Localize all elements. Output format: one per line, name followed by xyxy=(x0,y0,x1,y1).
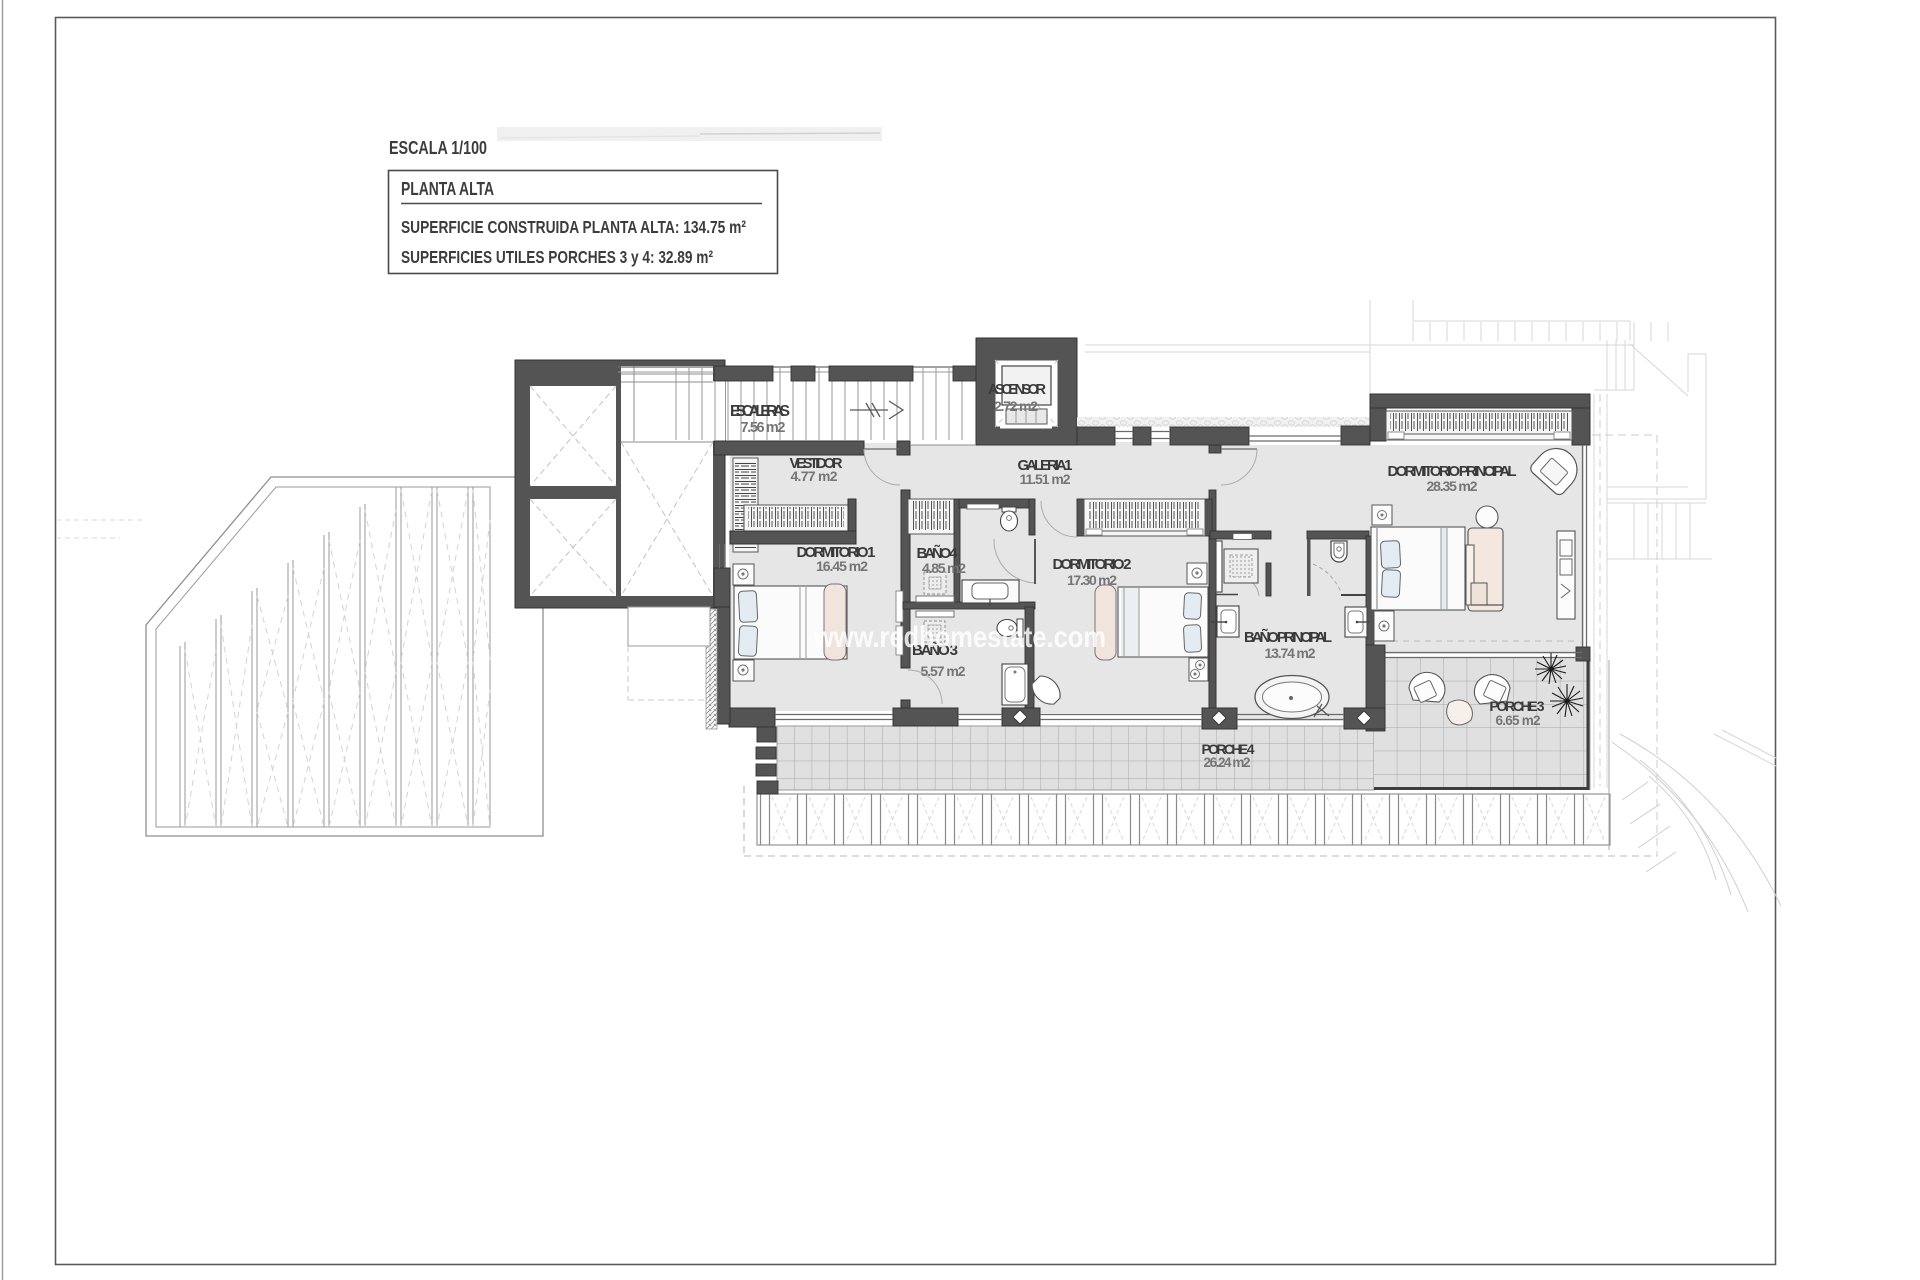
svg-text:SUPERFICIES UTILES PORCHES 3 y: SUPERFICIES UTILES PORCHES 3 y 4: 32.89 … xyxy=(401,247,713,267)
svg-text:4.77 m2: 4.77 m2 xyxy=(791,468,838,484)
svg-text:4.85 m2: 4.85 m2 xyxy=(922,560,966,576)
svg-text:6.65 m2: 6.65 m2 xyxy=(1496,713,1541,728)
svg-text:5.57 m2: 5.57 m2 xyxy=(921,663,966,679)
svg-text:7.56 m2: 7.56 m2 xyxy=(741,420,786,436)
svg-text:17.30 m2: 17.30 m2 xyxy=(1067,572,1117,588)
svg-text:13.74 m2: 13.74 m2 xyxy=(1265,645,1316,661)
svg-text:ESCALERAS: ESCALERAS xyxy=(730,403,790,420)
svg-text:SUPERFICIE CONSTRUIDA PLANTA A: SUPERFICIE CONSTRUIDA PLANTA ALTA: 134.7… xyxy=(401,217,746,237)
svg-text:16.45 m2: 16.45 m2 xyxy=(816,558,868,574)
svg-text:26.24 m2: 26.24 m2 xyxy=(1204,755,1251,770)
svg-text:ESCALA 1/100: ESCALA 1/100 xyxy=(389,137,487,158)
svg-text:PLANTA ALTA: PLANTA ALTA xyxy=(401,178,494,199)
svg-text:DORMITORIO 2: DORMITORIO 2 xyxy=(1053,556,1132,573)
svg-text:ASCENSOR: ASCENSOR xyxy=(988,382,1047,398)
svg-text:www.redhomestate.com: www.redhomestate.com xyxy=(813,621,1106,654)
svg-text:PORCHE 3: PORCHE 3 xyxy=(1490,698,1545,714)
svg-text:BAÑO PRINCIPAL: BAÑO PRINCIPAL xyxy=(1244,628,1332,646)
svg-text:2.72 m2: 2.72 m2 xyxy=(994,398,1038,414)
svg-text:11.51 m2: 11.51 m2 xyxy=(1020,471,1071,487)
svg-text:28.35 m2: 28.35 m2 xyxy=(1427,478,1478,494)
